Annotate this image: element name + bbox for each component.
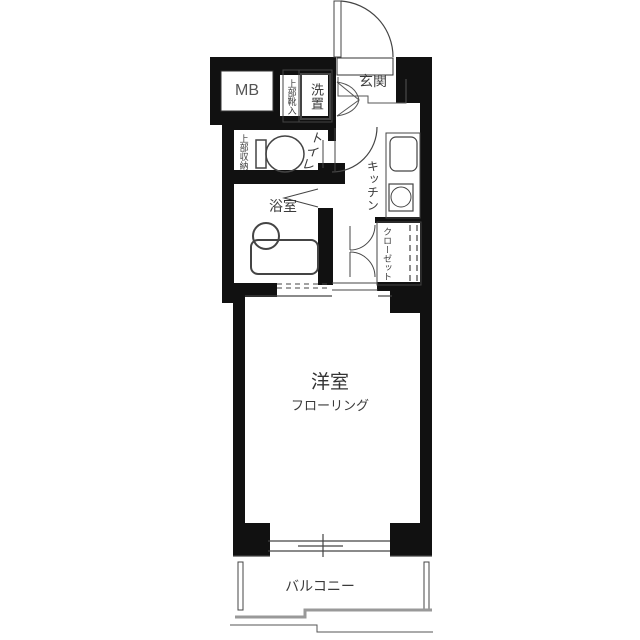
wall-left-upper xyxy=(222,123,234,303)
wall-room-pier-right xyxy=(390,523,432,556)
entrance-door-leaf xyxy=(334,1,341,57)
wall-room-top-right xyxy=(390,282,432,313)
label-main-room: 洋室 xyxy=(280,371,380,395)
label-upper-storage: 上部収納 xyxy=(236,126,251,178)
washroom-door-leaf-bottom xyxy=(337,100,359,116)
label-entrance: 玄関 xyxy=(348,72,398,90)
wall-room-top-left xyxy=(233,283,277,297)
balcony-post-left xyxy=(238,562,243,610)
bath-drain-circle xyxy=(253,223,279,249)
room-outlines xyxy=(233,296,432,556)
label-balcony: バルコニー xyxy=(260,576,380,596)
floorplan: MB 玄関 洗置 上部靴入 トイレ 上部収納 浴室 キッチン クローゼット 洋室… xyxy=(0,0,640,640)
balcony-post-right xyxy=(424,562,429,610)
entrance-door-arc xyxy=(341,1,393,57)
label-main-room-floor: フローリング xyxy=(270,397,390,415)
sliding-window xyxy=(268,534,390,557)
toilet-tank xyxy=(256,140,266,168)
label-washer-place: 洗置 xyxy=(303,76,328,118)
label-bathroom: 浴室 xyxy=(246,196,320,216)
label-upper-shoe-storage: 上部靴入 xyxy=(284,73,299,121)
kitchen-counter xyxy=(386,133,420,218)
entrance-door xyxy=(334,1,393,75)
kitchen-counter-outline xyxy=(386,133,420,218)
balcony-structure xyxy=(230,562,433,632)
label-closet: クローゼット xyxy=(379,223,395,284)
closet-door-arc-bottom xyxy=(350,252,375,277)
wall-room-pier-left xyxy=(233,523,270,556)
balcony-railing xyxy=(235,610,432,617)
kitchen-burner-circle xyxy=(391,187,411,207)
kitchen-sink xyxy=(390,137,417,171)
wall-room-left xyxy=(233,295,245,525)
label-meter-box: MB xyxy=(221,71,273,111)
bathtub xyxy=(251,240,318,274)
label-kitchen: キッチン xyxy=(361,142,382,230)
balcony-edge-line xyxy=(230,625,433,632)
wall-bath-right xyxy=(318,208,333,285)
